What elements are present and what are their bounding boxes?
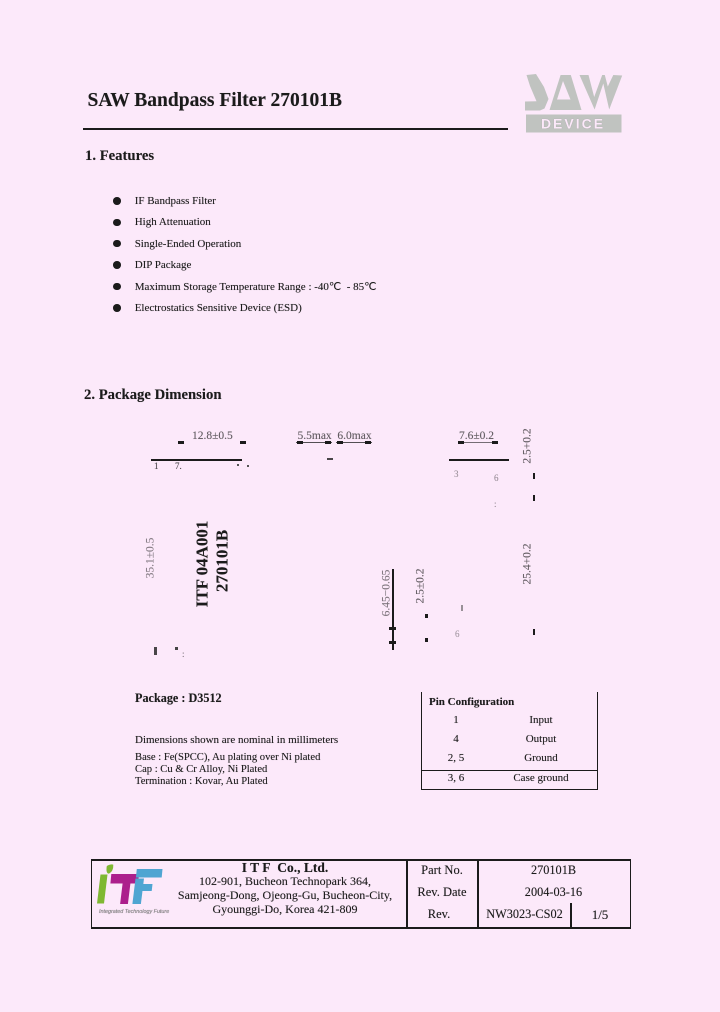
svg-text:DEVICE: DEVICE [541,116,605,132]
svg-text:Integrated Technology Future: Integrated Technology Future [99,909,169,915]
